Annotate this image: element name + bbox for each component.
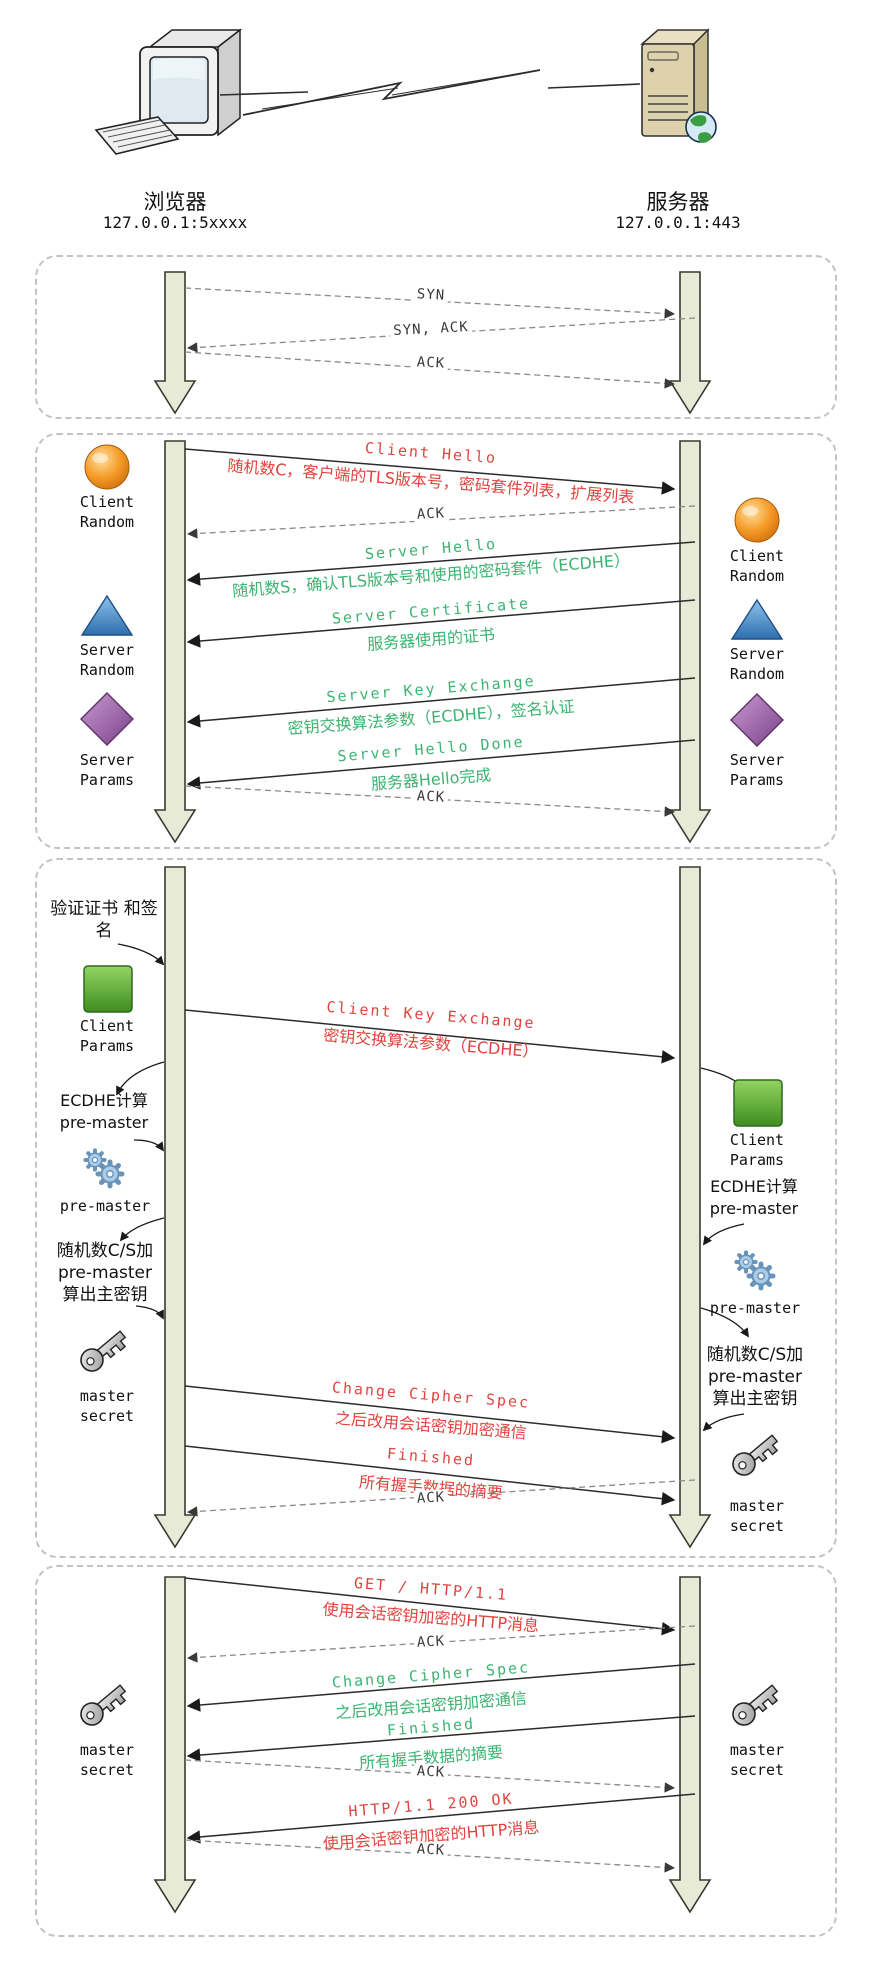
client-random-icon bbox=[85, 445, 129, 489]
server-params-label: Server Params bbox=[717, 750, 797, 790]
pre-master-gears-icon bbox=[736, 1252, 773, 1288]
server-lifeline bbox=[670, 272, 710, 413]
verify-cert-note: 验证证书 和签名 bbox=[49, 898, 159, 942]
server-address: 127.0.0.1:443 bbox=[598, 213, 758, 232]
master-secret-label: master secret bbox=[717, 1740, 797, 1780]
client-address: 127.0.0.1:5xxxx bbox=[95, 213, 255, 232]
client-random-label: Client Random bbox=[717, 546, 797, 586]
client-name: 浏览器 bbox=[115, 186, 235, 216]
client-params-icon bbox=[734, 1080, 782, 1126]
server-params-icon bbox=[81, 693, 133, 745]
master-secret-label: master secret bbox=[67, 1740, 147, 1780]
client-random-label: Client Random bbox=[67, 492, 147, 532]
ecdhe-premaster-note: ECDHE计算 pre-master bbox=[49, 1090, 159, 1134]
computer-icon bbox=[96, 30, 240, 154]
server-icon bbox=[642, 30, 716, 143]
pre-master-gears-icon bbox=[85, 1150, 122, 1186]
master-key-note: 随机数C/S加 pre-master 算出主密钥 bbox=[47, 1240, 163, 1306]
client-params-label: Client Params bbox=[717, 1130, 797, 1170]
server-random-icon bbox=[82, 596, 132, 635]
server-params-icon bbox=[731, 694, 783, 746]
server-random-label: Server Random bbox=[67, 640, 147, 680]
master-key-note: 随机数C/S加 pre-master 算出主密钥 bbox=[697, 1344, 813, 1410]
ecdhe-premaster-note: ECDHE计算 pre-master bbox=[699, 1176, 809, 1220]
server-random-label: Server Random bbox=[717, 644, 797, 684]
client-params-label: Client Params bbox=[67, 1016, 147, 1056]
master-secret-key-icon bbox=[77, 1680, 130, 1730]
server-name: 服务器 bbox=[618, 186, 738, 216]
lightning-icon bbox=[220, 70, 640, 115]
server-random-icon bbox=[732, 600, 782, 639]
globe-icon bbox=[686, 112, 716, 143]
server-params-label: Server Params bbox=[67, 750, 147, 790]
tls-handshake-sequence-diagram: 浏览器 127.0.0.1:5xxxx 服务器 127.0.0.1:443 SY… bbox=[0, 0, 870, 1979]
master-secret-label: master secret bbox=[717, 1496, 797, 1536]
master-secret-key-icon bbox=[729, 1680, 782, 1730]
client-random-icon bbox=[735, 498, 779, 542]
pre-master-label: pre-master bbox=[45, 1196, 165, 1216]
client-params-icon bbox=[84, 966, 132, 1012]
master-secret-label: master secret bbox=[67, 1386, 147, 1426]
master-secret-key-icon bbox=[729, 1430, 782, 1480]
master-secret-key-icon bbox=[77, 1326, 130, 1376]
pre-master-label: pre-master bbox=[695, 1298, 815, 1318]
